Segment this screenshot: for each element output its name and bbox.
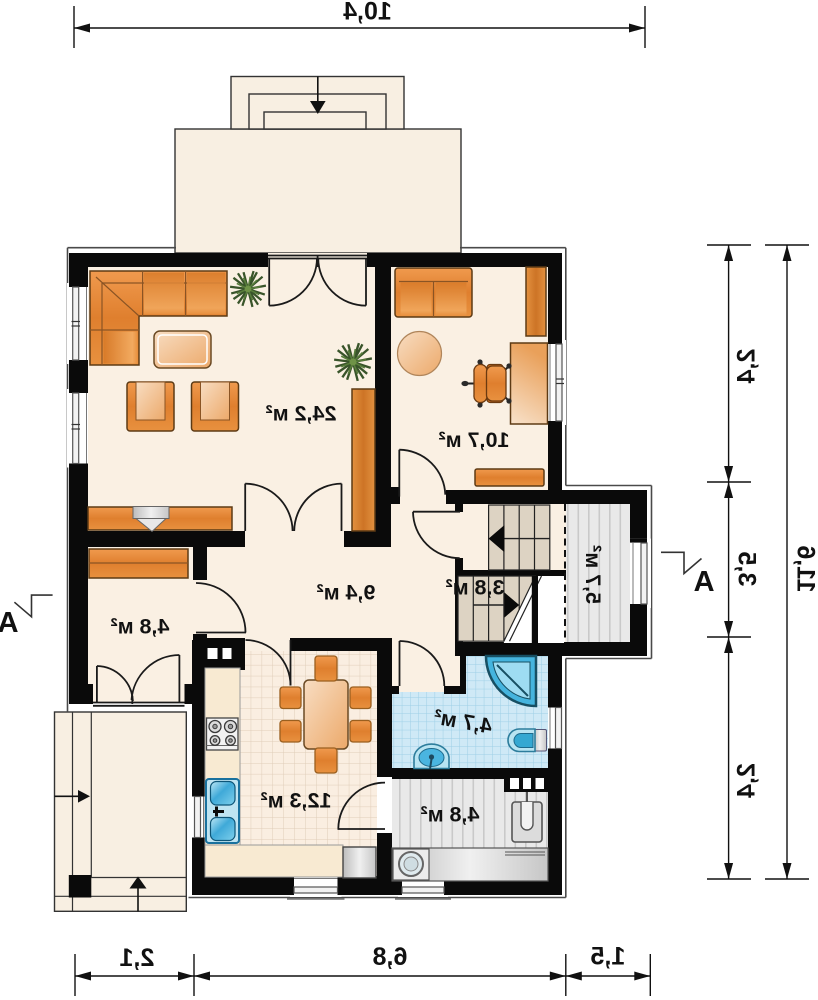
- svg-text:24,2 м²: 24,2 м²: [266, 402, 337, 426]
- svg-text:11,6: 11,6: [792, 545, 818, 592]
- svg-text:6,8: 6,8: [373, 943, 408, 971]
- svg-text:10,7 м²: 10,7 м²: [439, 428, 510, 452]
- svg-text:4,8 м²: 4,8 м²: [421, 803, 480, 827]
- svg-text:3,5: 3,5: [732, 552, 760, 587]
- svg-text:A: A: [0, 607, 18, 639]
- svg-text:1,5: 1,5: [591, 943, 626, 971]
- svg-text:A: A: [693, 566, 714, 598]
- svg-text:4,8 м²: 4,8 м²: [111, 615, 170, 639]
- svg-text:9,4 м²: 9,4 м²: [317, 581, 376, 605]
- svg-text:5,7 м²: 5,7 м²: [581, 545, 605, 604]
- svg-text:2,1: 2,1: [120, 944, 155, 972]
- svg-text:3,8 м²: 3,8 м²: [446, 576, 505, 600]
- svg-text:12,3 м²: 12,3 м²: [261, 789, 332, 813]
- svg-text:2,4: 2,4: [732, 349, 760, 384]
- svg-text:10,4: 10,4: [343, 0, 392, 26]
- svg-text:2,4: 2,4: [733, 763, 761, 798]
